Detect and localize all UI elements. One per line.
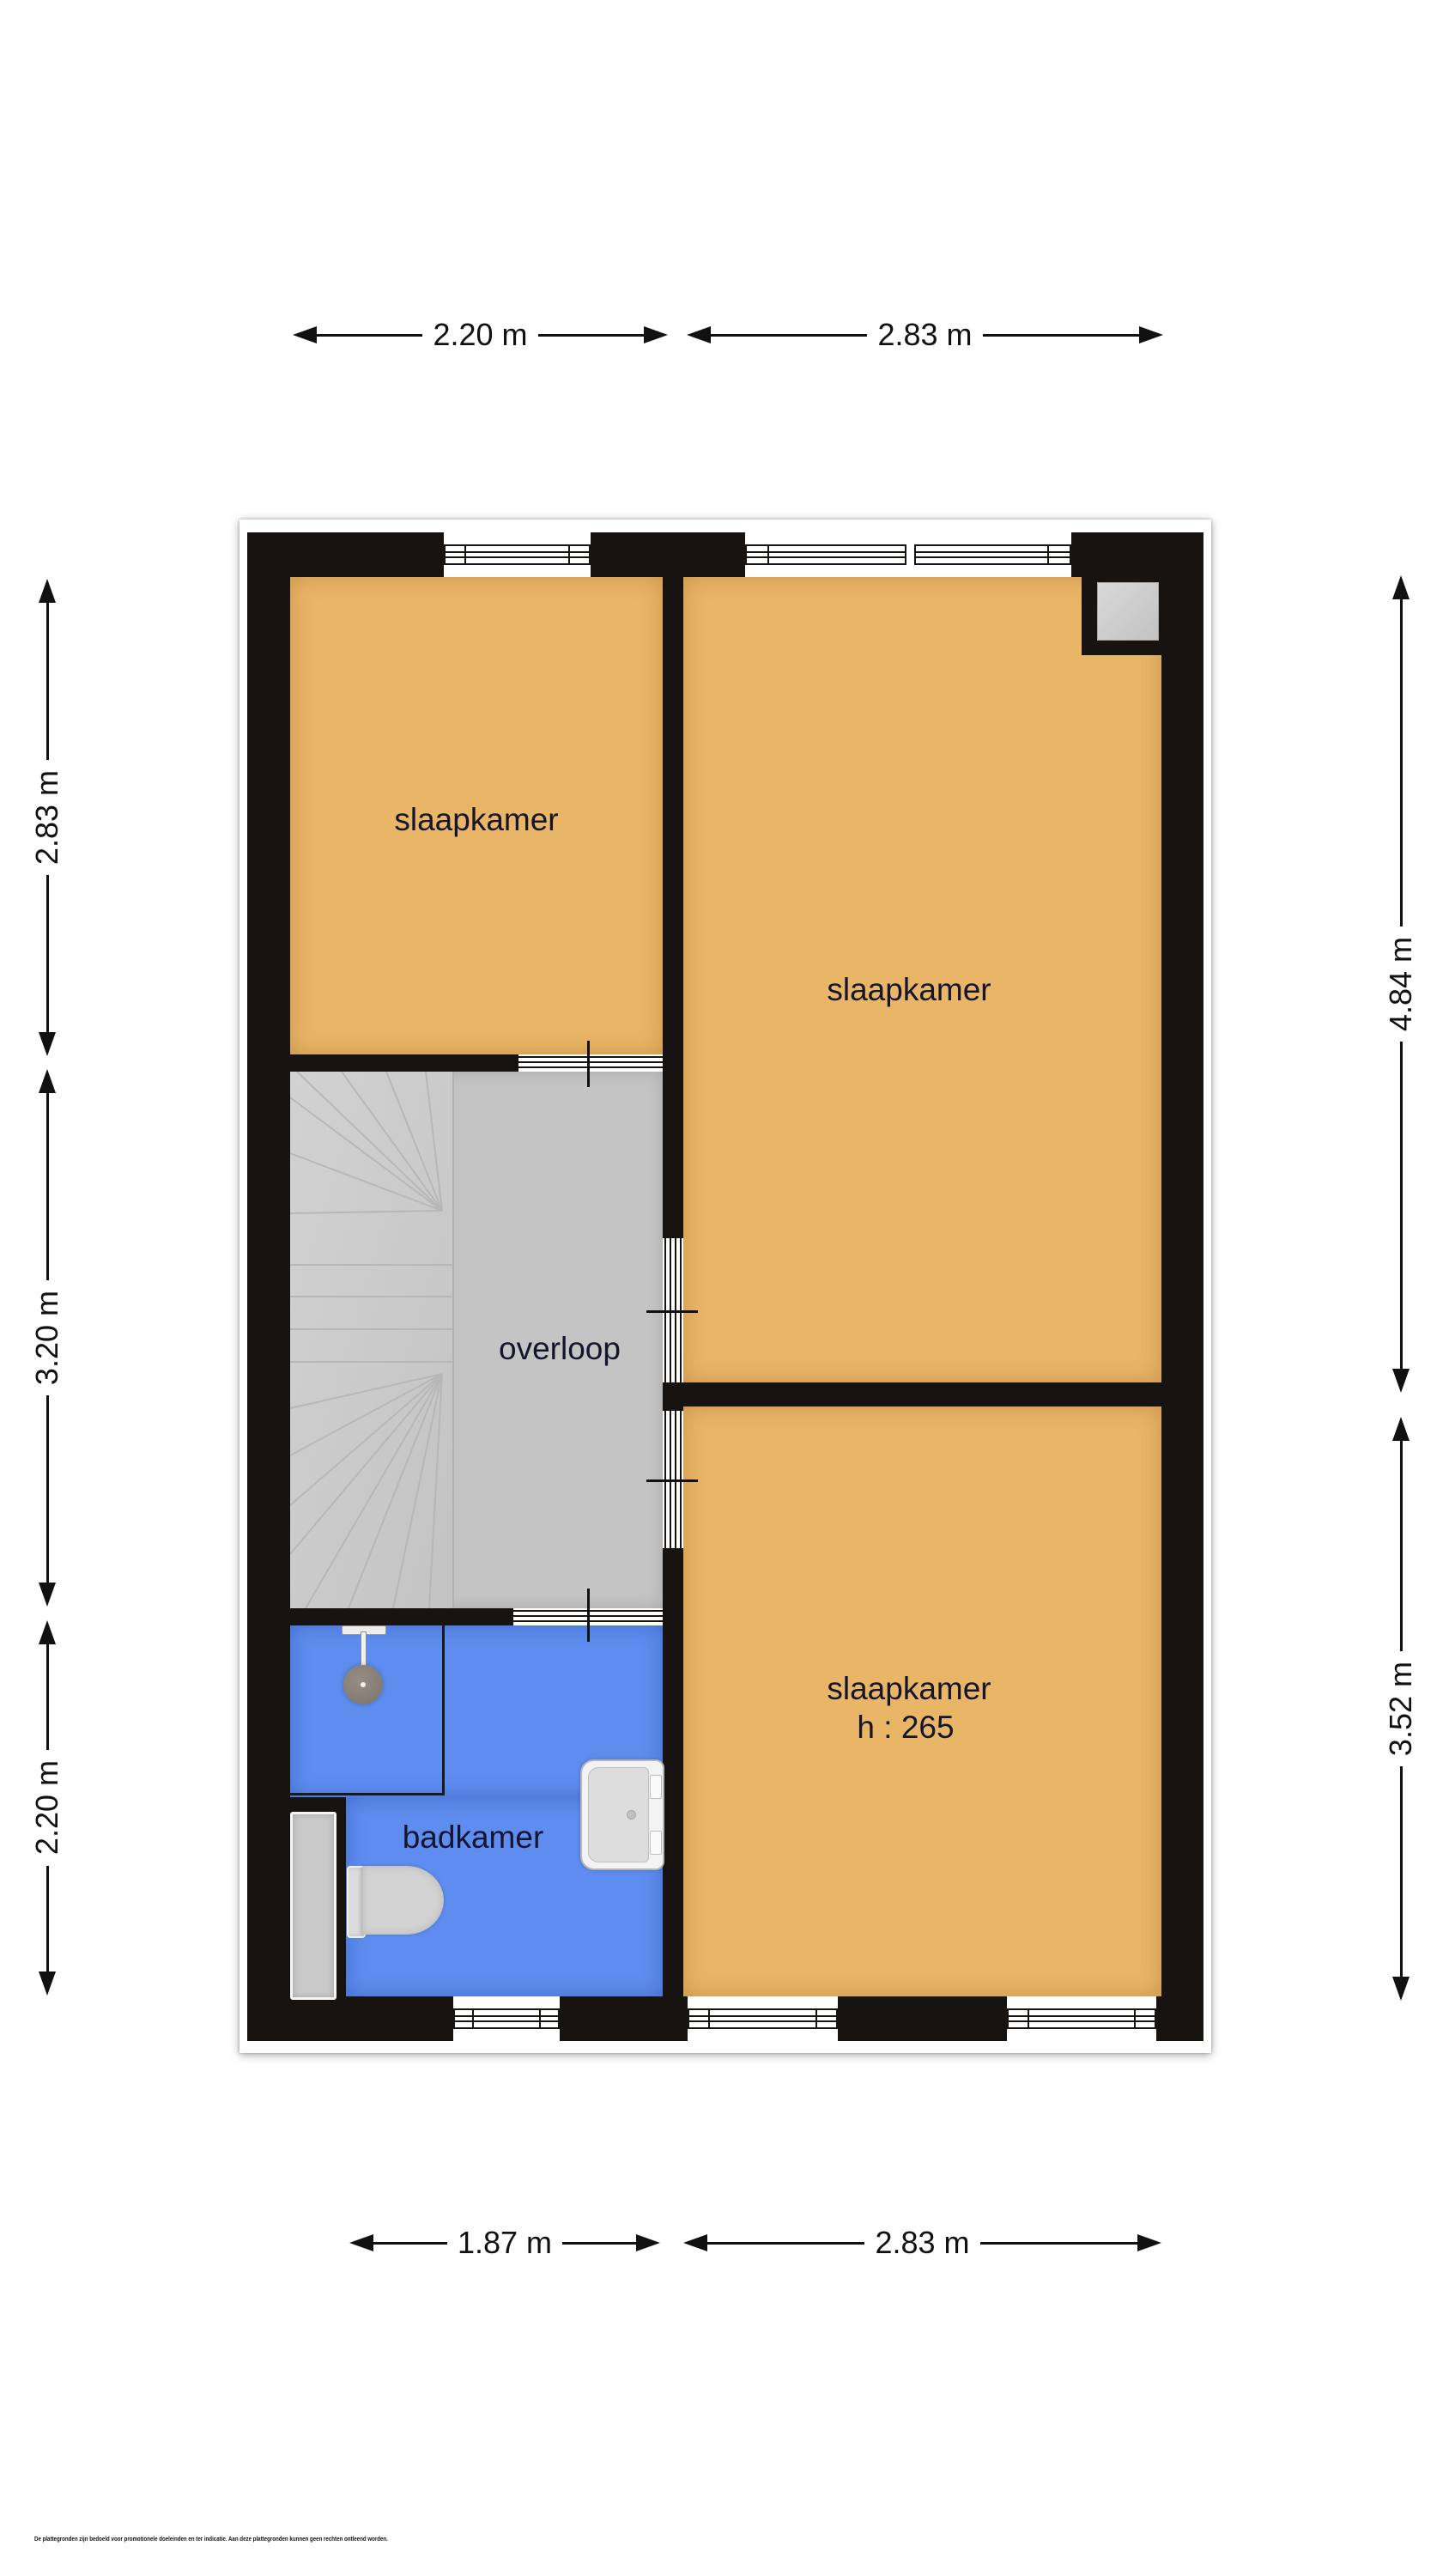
dimension-right-2: 3.52 m — [1384, 1417, 1418, 2001]
radiator-icon — [290, 1812, 336, 2000]
dimension-label: 4.84 m — [1383, 927, 1419, 1042]
dimension-bottom-1: 1.87 m — [349, 2227, 660, 2258]
shower-screen-vertical — [442, 1625, 445, 1795]
arrow-up-icon — [1392, 1417, 1410, 1441]
arrow-left-icon — [683, 2234, 707, 2251]
window-top-right — [745, 532, 1071, 577]
label-landing: overloop — [499, 1331, 621, 1367]
wall-bedrooms-top-divider — [663, 577, 683, 1054]
shower-head-icon — [343, 1665, 383, 1704]
arrow-right-icon — [644, 326, 668, 343]
dimension-bottom-2: 2.83 m — [683, 2227, 1161, 2258]
dimension-label: 3.52 m — [1383, 1651, 1419, 1766]
arrow-left-icon — [349, 2234, 373, 2251]
dimension-label: 2.20 m — [29, 1750, 65, 1865]
dimension-top-1: 2.20 m — [293, 319, 668, 350]
label-ceiling-height: h : 265 — [857, 1710, 954, 1746]
arrow-right-icon — [1139, 326, 1163, 343]
window-bottom-right — [1007, 1996, 1156, 2041]
stairs-landing-divider — [452, 1072, 454, 1608]
arrow-up-icon — [39, 579, 56, 603]
wall-bathroom-right — [663, 1608, 683, 1996]
arrow-up-icon — [39, 1620, 56, 1644]
shower-screen-horizontal — [290, 1793, 445, 1795]
label-bedroom-top-left: slaapkamer — [394, 802, 558, 838]
wall-bathroom-top — [290, 1608, 513, 1625]
chimney-duct-icon — [1097, 582, 1159, 641]
arrow-up-icon — [39, 1069, 56, 1093]
window-bottom-left — [688, 1996, 838, 2041]
wall-spine-junction — [663, 1382, 683, 1411]
door-tick-bedroom-right — [646, 1310, 698, 1313]
window-bottom-bathroom — [453, 1996, 560, 2041]
dimension-left-1: 2.83 m — [30, 579, 64, 1056]
dimension-label: 2.20 m — [422, 317, 537, 353]
label-bedroom-bottom-right: slaapkamer — [827, 1671, 991, 1707]
wall-right-bedrooms-divider — [683, 1382, 1161, 1406]
label-bathroom: badkamer — [403, 1820, 544, 1856]
dimension-label: 3.20 m — [29, 1280, 65, 1395]
dimension-left-3: 2.20 m — [30, 1620, 64, 1996]
arrow-left-icon — [687, 326, 711, 343]
disclaimer-text: De plattegronden zijn bedoeld voor promo… — [34, 2535, 388, 2543]
dimension-label: 2.83 m — [867, 317, 982, 353]
arrow-down-icon — [39, 1583, 56, 1607]
dimension-label: 2.83 m — [864, 2225, 979, 2261]
door-tick-bathroom — [587, 1589, 590, 1642]
wall-landing-right-upper — [663, 1054, 683, 1238]
winder-stairs-icon — [290, 1072, 452, 1608]
washbasin-icon — [580, 1759, 664, 1870]
wall-outer-left — [247, 532, 290, 2041]
wall-landing-right-lower — [663, 1548, 683, 1608]
wall-bedroom-top-left-bottom — [290, 1054, 518, 1072]
arrow-right-icon — [636, 2234, 660, 2251]
dimension-left-2: 3.20 m — [30, 1069, 64, 1607]
arrow-down-icon — [1392, 1369, 1410, 1393]
arrow-right-icon — [1137, 2234, 1161, 2251]
door-bedroom-top-left — [518, 1054, 663, 1072]
arrow-left-icon — [293, 326, 317, 343]
toilet-icon — [362, 1866, 444, 1935]
label-bedroom-right: slaapkamer — [827, 972, 991, 1008]
wall-outer-right — [1161, 532, 1203, 2041]
window-top-left — [444, 532, 591, 577]
arrow-down-icon — [39, 1971, 56, 1996]
arrow-up-icon — [1392, 575, 1410, 599]
dimension-label: 2.83 m — [29, 760, 65, 875]
dimension-label: 1.87 m — [447, 2225, 562, 2261]
arrow-down-icon — [1392, 1977, 1410, 2001]
arrow-down-icon — [39, 1032, 56, 1056]
floorplan-page: { "rooms": [ {"id": "bedroom-top-left", … — [0, 0, 1449, 2576]
door-tick-bedroom-bottom-right — [646, 1479, 698, 1482]
dimension-top-2: 2.83 m — [687, 319, 1163, 350]
door-tick-bedroom-top-left — [587, 1041, 590, 1087]
dimension-right-1: 4.84 m — [1384, 575, 1418, 1393]
